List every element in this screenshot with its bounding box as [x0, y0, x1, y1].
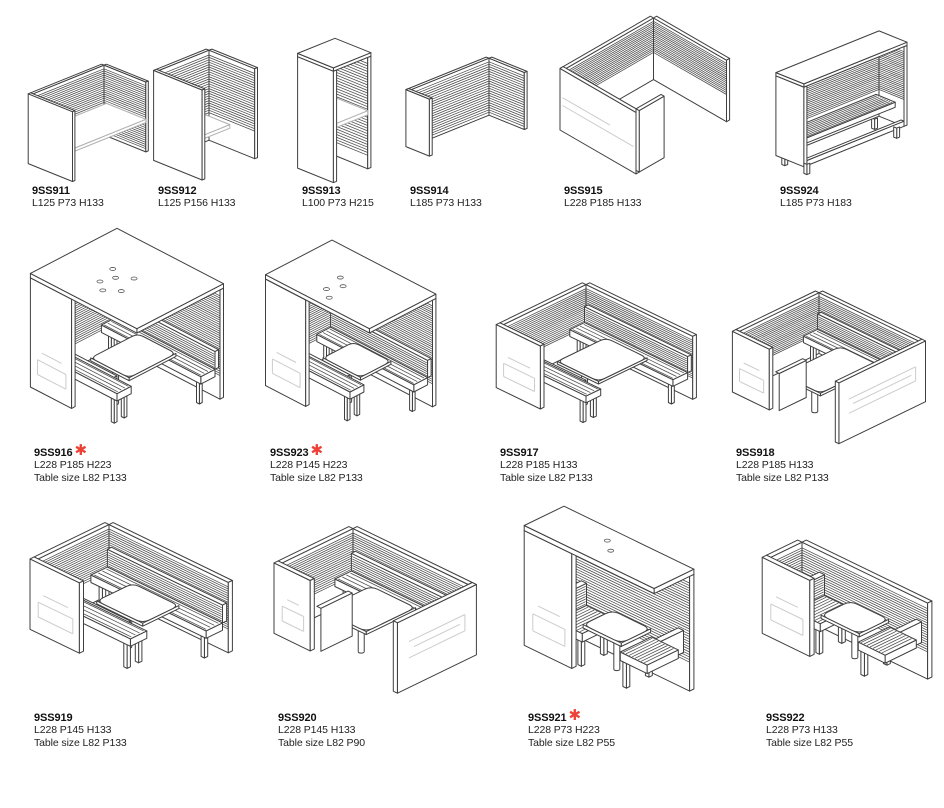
product-table-size: Table size L82 P133 — [500, 472, 706, 485]
product-card: 9SS917 L228 P185 H133 Table size L82 P13… — [492, 278, 706, 485]
catalog-page: 9SS911 L125 P73 H133 9SS912 L125 P156 H1… — [0, 0, 944, 808]
product-table-size: Table size L82 P133 — [270, 472, 464, 485]
booth-isometric-drawing — [772, 20, 920, 183]
product-dimensions: L228 P145 H133 — [278, 724, 484, 737]
product-dimensions: L228 P73 H133 — [766, 724, 942, 737]
product-dimensions: L228 P145 H133 — [34, 724, 234, 737]
product-code: 9SS917 — [500, 447, 539, 459]
product-card: 9SS923✱ L228 P145 H223 Table size L82 P1… — [262, 238, 464, 485]
product-card: 9SS922 L228 P73 H133 Table size L82 P55 — [758, 536, 942, 750]
product-label: 9SS921✱ L228 P73 H223 Table size L82 P55 — [520, 712, 720, 750]
product-dimensions: L228 P185 H133 — [736, 459, 936, 472]
product-dimensions: L185 P73 H133 — [410, 197, 536, 210]
product-card: 9SS921✱ L228 P73 H223 Table size L82 P55 — [520, 504, 720, 750]
product-code: 9SS916 — [34, 447, 73, 459]
product-card: 9SS919 L228 P145 H133 Table size L82 P13… — [26, 518, 234, 750]
product-table-size: Table size L82 P90 — [278, 737, 484, 750]
booth-isometric-drawing — [294, 36, 390, 183]
product-label: 9SS911 L125 P73 H133 — [24, 185, 156, 210]
product-card: 9SS916✱ L228 P185 H223 Table size L82 P1… — [26, 226, 226, 485]
product-table-size: Table size L82 P55 — [528, 737, 720, 750]
booth-isometric-drawing — [728, 286, 936, 445]
product-dimensions: L228 P185 H133 — [500, 459, 706, 472]
booth-isometric-drawing — [520, 504, 720, 710]
booth-isometric-drawing — [402, 52, 536, 183]
product-label: 9SS914 L185 P73 H133 — [402, 185, 536, 210]
product-code: 9SS912 — [158, 185, 197, 197]
product-card: 9SS924 L185 P73 H183 — [772, 20, 920, 210]
product-label: 9SS923✱ L228 P145 H223 Table size L82 P1… — [262, 447, 464, 485]
product-label: 9SS920 L228 P145 H133 Table size L82 P90 — [270, 712, 484, 750]
new-option-asterisk: ✱ — [569, 710, 582, 721]
product-table-size: Table size L82 P133 — [736, 472, 936, 485]
booth-isometric-drawing — [26, 518, 234, 710]
product-card: 9SS918 L228 P185 H133 Table size L82 P13… — [728, 286, 936, 485]
product-label: 9SS913 L100 P73 H215 — [294, 185, 390, 210]
product-card: 9SS912 L125 P156 H133 — [150, 45, 268, 210]
booth-isometric-drawing — [262, 238, 464, 445]
product-label: 9SS915 L228 P185 H133 — [556, 185, 748, 210]
product-dimensions: L228 P185 H223 — [34, 459, 226, 472]
product-code: 9SS921 — [528, 712, 567, 724]
product-dimensions: L228 P73 H223 — [528, 724, 720, 737]
product-label: 9SS922 L228 P73 H133 Table size L82 P55 — [758, 712, 942, 750]
product-table-size: Table size L82 P133 — [34, 472, 226, 485]
product-dimensions: L228 P185 H133 — [564, 197, 748, 210]
product-card: 9SS913 L100 P73 H215 — [294, 36, 390, 210]
booth-isometric-drawing — [24, 60, 156, 183]
booth-isometric-drawing — [556, 10, 748, 183]
product-label: 9SS919 L228 P145 H133 Table size L82 P13… — [26, 712, 234, 750]
booth-isometric-drawing — [150, 45, 268, 183]
new-option-asterisk: ✱ — [311, 445, 324, 456]
product-card: 9SS915 L228 P185 H133 — [556, 10, 748, 210]
product-code: 9SS922 — [766, 712, 805, 724]
product-dimensions: L125 P73 H133 — [32, 197, 156, 210]
product-dimensions: L125 P156 H133 — [158, 197, 268, 210]
booth-isometric-drawing — [758, 536, 942, 710]
product-code: 9SS920 — [278, 712, 317, 724]
product-code: 9SS923 — [270, 447, 309, 459]
booth-isometric-drawing — [26, 226, 226, 445]
product-card: 9SS911 L125 P73 H133 — [24, 60, 156, 210]
product-code: 9SS911 — [32, 185, 70, 197]
product-table-size: Table size L82 P55 — [766, 737, 942, 750]
product-label: 9SS916✱ L228 P185 H223 Table size L82 P1… — [26, 447, 226, 485]
product-code: 9SS919 — [34, 712, 73, 724]
product-code: 9SS915 — [564, 185, 603, 197]
new-option-asterisk: ✱ — [75, 445, 88, 456]
product-code: 9SS914 — [410, 185, 449, 197]
product-label: 9SS924 L185 P73 H183 — [772, 185, 920, 210]
product-label: 9SS912 L125 P156 H133 — [150, 185, 268, 210]
product-dimensions: L100 P73 H215 — [302, 197, 390, 210]
booth-isometric-drawing — [270, 522, 484, 710]
product-table-size: Table size L82 P133 — [34, 737, 234, 750]
product-dimensions: L228 P145 H223 — [270, 459, 464, 472]
product-code: 9SS913 — [302, 185, 341, 197]
product-code: 9SS924 — [780, 185, 819, 197]
product-label: 9SS918 L228 P185 H133 Table size L82 P13… — [728, 447, 936, 485]
booth-isometric-drawing — [492, 278, 706, 445]
product-card: 9SS914 L185 P73 H133 — [402, 52, 536, 210]
product-code: 9SS918 — [736, 447, 775, 459]
product-card: 9SS920 L228 P145 H133 Table size L82 P90 — [270, 522, 484, 750]
product-label: 9SS917 L228 P185 H133 Table size L82 P13… — [492, 447, 706, 485]
product-dimensions: L185 P73 H183 — [780, 197, 920, 210]
